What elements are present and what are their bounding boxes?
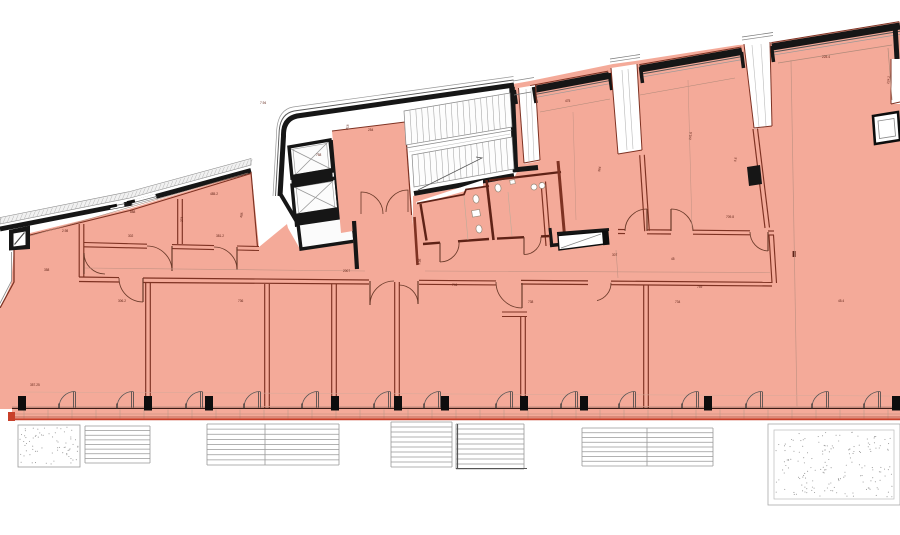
svg-text:358: 358 [44,268,50,272]
svg-text:709.8: 709.8 [726,215,734,219]
svg-text:306.2: 306.2 [118,299,126,303]
svg-text:888: 888 [130,210,136,214]
svg-text:736: 736 [238,299,244,303]
svg-text:254: 254 [368,128,374,132]
svg-text:2.98: 2.98 [62,229,68,233]
svg-text:274: 274 [180,216,184,222]
svg-text:2007: 2007 [343,269,350,273]
svg-text:758: 758 [316,153,322,157]
svg-text:734: 734 [675,300,681,304]
svg-text:485.2: 485.2 [210,192,218,196]
svg-text:738: 738 [528,300,534,304]
svg-text:45: 45 [671,257,675,261]
svg-text:749: 749 [697,285,703,289]
svg-text:381.2: 381.2 [216,234,224,238]
svg-text:746: 746 [452,283,458,287]
svg-text:307: 307 [612,253,618,257]
svg-text:45.4: 45.4 [838,299,844,303]
svg-text:475: 475 [565,99,571,103]
svg-text:357.25: 357.25 [30,383,40,387]
svg-text:302: 302 [128,234,134,238]
svg-text:225.4: 225.4 [822,55,830,59]
svg-text:7.94: 7.94 [260,101,266,105]
